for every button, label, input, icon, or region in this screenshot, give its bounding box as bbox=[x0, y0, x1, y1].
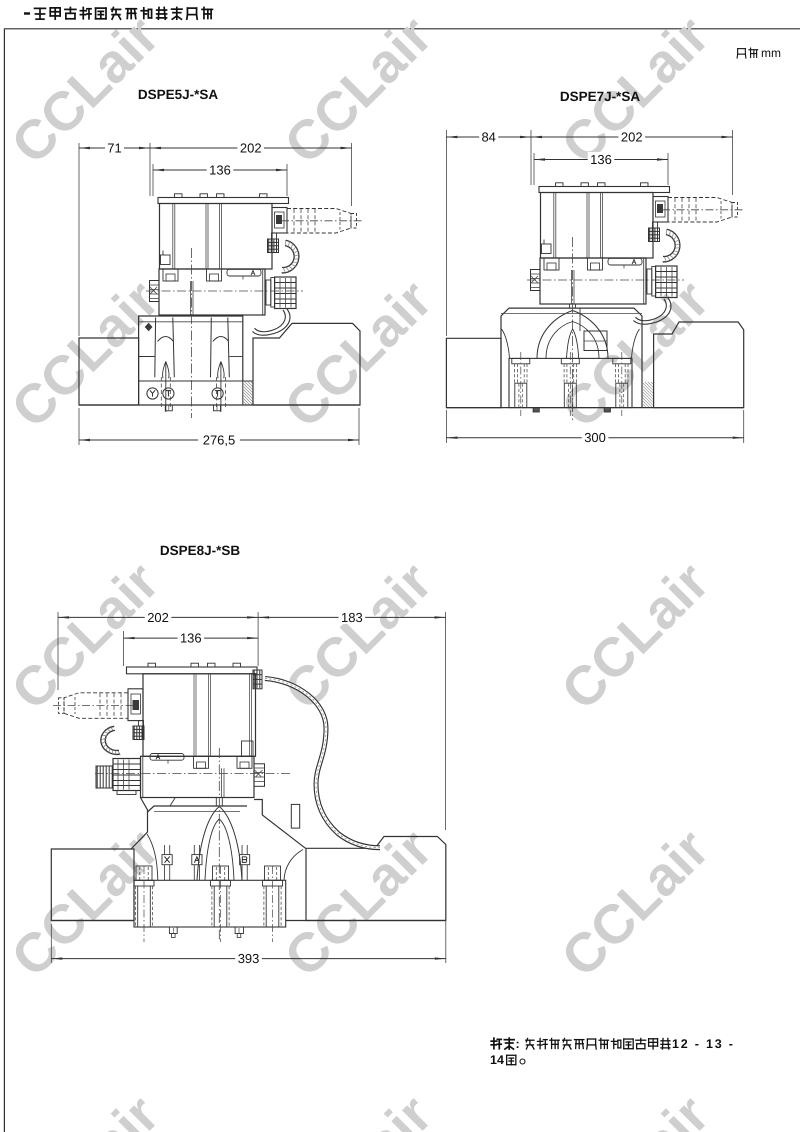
svg-text:CCLair: CCLair bbox=[0, 817, 171, 988]
svg-text:300: 300 bbox=[584, 430, 606, 445]
svg-text:CCLair: CCLair bbox=[0, 1083, 171, 1132]
svg-text:136: 136 bbox=[180, 631, 202, 646]
svg-text:DSPE5J-*SA: DSPE5J-*SA bbox=[138, 87, 219, 102]
svg-text:CCLair: CCLair bbox=[272, 550, 443, 721]
svg-text:393: 393 bbox=[238, 951, 260, 966]
svg-text:12 - 13 -: 12 - 13 - bbox=[672, 1037, 735, 1051]
svg-text:CCLair: CCLair bbox=[0, 550, 171, 721]
svg-text:183: 183 bbox=[341, 610, 363, 625]
svg-text:CCLair: CCLair bbox=[549, 1083, 720, 1132]
svg-text:CCLair: CCLair bbox=[549, 817, 720, 988]
svg-text:136: 136 bbox=[209, 163, 231, 178]
svg-text:276,5: 276,5 bbox=[203, 433, 236, 448]
svg-text:CCLair: CCLair bbox=[272, 1083, 443, 1132]
svg-text:202: 202 bbox=[240, 141, 262, 156]
svg-text:DSPE7J-*SA: DSPE7J-*SA bbox=[560, 89, 641, 104]
svg-text:CCLair: CCLair bbox=[549, 268, 720, 439]
svg-text:136: 136 bbox=[590, 152, 612, 167]
svg-text::: : bbox=[516, 1037, 520, 1051]
svg-text:CCLair: CCLair bbox=[0, 268, 171, 439]
svg-text:CCLair: CCLair bbox=[549, 550, 720, 721]
svg-text:mm: mm bbox=[761, 46, 781, 60]
svg-text:202: 202 bbox=[147, 610, 169, 625]
svg-text:71: 71 bbox=[107, 141, 121, 156]
svg-text:CCLair: CCLair bbox=[272, 4, 443, 175]
svg-text:202: 202 bbox=[621, 130, 643, 145]
svg-text:CCLair: CCLair bbox=[272, 268, 443, 439]
svg-text:84: 84 bbox=[481, 130, 495, 145]
svg-text:DSPE8J-*SB: DSPE8J-*SB bbox=[160, 543, 241, 558]
svg-text:14: 14 bbox=[490, 1053, 504, 1067]
